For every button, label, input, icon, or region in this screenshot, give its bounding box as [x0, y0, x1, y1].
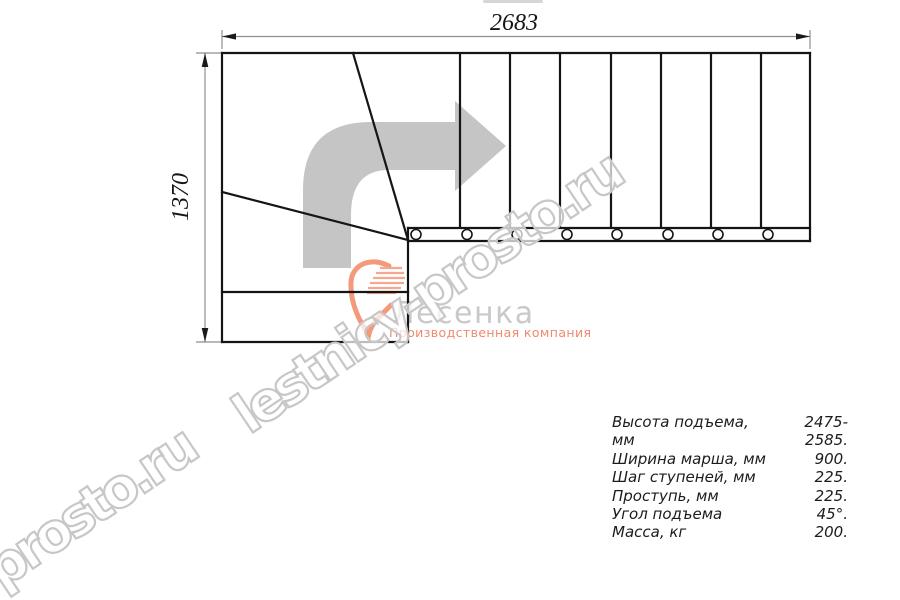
dimension-arrowheads — [202, 33, 810, 342]
spec-label: Масса, кг — [612, 523, 686, 541]
spec-value: 225. — [815, 487, 848, 505]
spec-value: 900. — [815, 450, 848, 468]
spec-row: Проступь, мм225. — [612, 487, 848, 505]
spec-row: Масса, кг200. — [612, 523, 848, 541]
dimension-lines — [196, 30, 810, 342]
spec-row: Ширина марша, мм900. — [612, 450, 848, 468]
dimension-height-label: 1370 — [168, 173, 194, 221]
spec-label: Проступь, мм — [612, 487, 719, 505]
spec-value: 225. — [815, 468, 848, 486]
spec-value: 2475-2585. — [767, 413, 848, 450]
spec-label: Высота подъема, мм — [612, 413, 767, 450]
dimension-width-label: 2683 — [490, 10, 538, 36]
spec-label: Угол подъема — [612, 505, 722, 523]
spec-label: Ширина марша, мм — [612, 450, 766, 468]
spec-value: 45°. — [817, 505, 848, 523]
spec-table: Высота подъема, мм2475-2585.Ширина марша… — [612, 413, 848, 542]
staircase-drawing-page: Лесенка Производственная компания — [0, 0, 900, 600]
spec-label: Шаг ступеней, мм — [612, 468, 756, 486]
spec-value: 200. — [815, 523, 848, 541]
spec-row: Высота подъема, мм2475-2585. — [612, 413, 848, 450]
spec-row: Угол подъема45°. — [612, 505, 848, 523]
spec-row: Шаг ступеней, мм225. — [612, 468, 848, 486]
